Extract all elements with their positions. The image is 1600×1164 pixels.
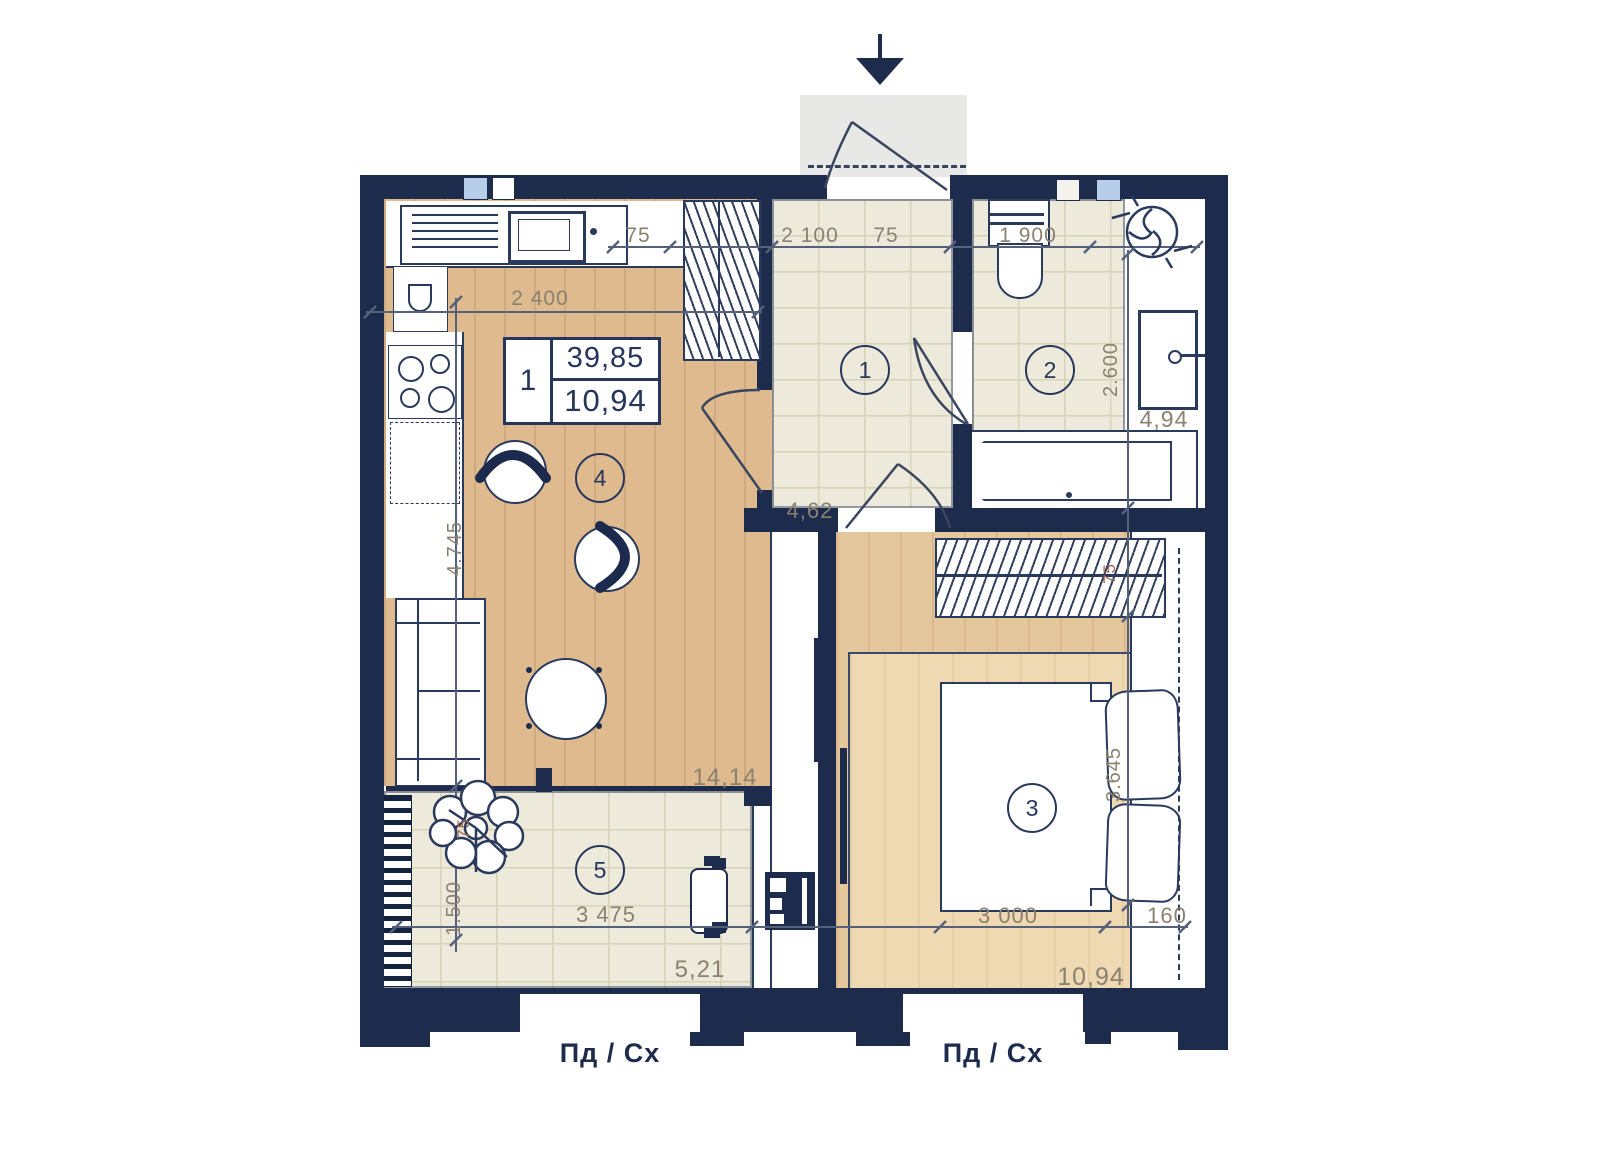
room-number-hallway: 1 bbox=[840, 345, 890, 395]
hinge-block bbox=[704, 928, 720, 938]
wardrobe bbox=[935, 538, 1166, 618]
desk-slot bbox=[770, 898, 782, 910]
dining-table-1 bbox=[483, 440, 547, 504]
vent-white bbox=[492, 177, 515, 200]
wall-living-bedroom bbox=[818, 532, 836, 988]
orientation-label-left: Пд / Сх bbox=[528, 1038, 692, 1069]
round-table bbox=[525, 658, 607, 740]
balcony-area: 5,21 bbox=[662, 956, 738, 984]
tv-console bbox=[840, 748, 847, 884]
entry-threshold-dashed bbox=[808, 165, 966, 168]
bed-notch bbox=[1090, 888, 1108, 906]
orientation-label-right: Пд / Сх bbox=[911, 1038, 1075, 1069]
toilet-tank-line bbox=[990, 213, 1044, 216]
hall-closet bbox=[683, 200, 761, 361]
bathtub-drain-icon bbox=[1066, 492, 1072, 498]
sofa-armrest-line bbox=[397, 622, 480, 624]
dim-top-75-left: 75 bbox=[614, 224, 662, 248]
bathroom-faucet-icon bbox=[1168, 350, 1182, 364]
dim-kitchen-height: 4.745 bbox=[444, 490, 470, 606]
sofa-cushion-line bbox=[419, 690, 480, 692]
apartment-total-area: 39,85 bbox=[553, 340, 658, 381]
dim-balcony-height: 1.500 bbox=[443, 862, 469, 954]
vent-white bbox=[1056, 179, 1080, 201]
room-number-text: 4 bbox=[594, 465, 607, 492]
entry-opening bbox=[827, 177, 950, 199]
wall-bottom-seg bbox=[700, 994, 903, 1032]
wall-foot bbox=[1085, 1032, 1111, 1044]
sink-drainer-icon bbox=[412, 214, 498, 254]
apartment-living-area: 10,94 bbox=[553, 381, 658, 422]
burner-icon bbox=[400, 388, 420, 408]
desk-slot bbox=[770, 914, 784, 924]
balcony-door-leaf bbox=[536, 768, 552, 792]
dim-wardrobe-depth: 75 bbox=[1100, 546, 1124, 602]
wall-left bbox=[360, 175, 384, 1032]
hinge-block bbox=[704, 856, 720, 866]
wall-foot bbox=[856, 1032, 910, 1046]
dim-bed-width: 3 000 bbox=[966, 903, 1050, 929]
bathroom-faucet-line bbox=[1180, 354, 1205, 357]
dim-line-kitchen bbox=[366, 311, 762, 313]
wall-hall-bath-lower bbox=[953, 424, 972, 532]
room-number-kitchen: 4 bbox=[575, 453, 625, 503]
dim-bedroom-height: 3.645 bbox=[1103, 722, 1129, 826]
living-area: 14,14 bbox=[684, 764, 766, 792]
wall-foot bbox=[1178, 1032, 1228, 1050]
dim-line-bottom bbox=[392, 926, 1188, 928]
room-number-bedroom: 3 bbox=[1007, 783, 1057, 833]
wall-top-left bbox=[360, 175, 827, 199]
sink-basin-inner bbox=[518, 219, 570, 251]
room-number-text: 2 bbox=[1044, 357, 1057, 384]
dim-kitchen-width: 2 400 bbox=[498, 287, 582, 311]
wall-foot bbox=[690, 1032, 744, 1046]
dining-table-2 bbox=[574, 526, 640, 592]
burner-icon bbox=[398, 356, 424, 382]
bed-notch bbox=[1090, 684, 1108, 702]
room-number-text: 1 bbox=[859, 357, 872, 384]
sofa-armrest-line bbox=[397, 758, 480, 760]
bathroom-area: 4,94 bbox=[1130, 406, 1198, 433]
bedroom-area: 10,94 bbox=[1046, 963, 1136, 992]
wall-bottom-seg bbox=[1083, 994, 1228, 1032]
dim-balcony-width: 3 475 bbox=[562, 902, 650, 928]
vent-blue bbox=[463, 177, 488, 200]
hall-closet-divider bbox=[718, 200, 720, 357]
wall-right bbox=[1205, 175, 1228, 1050]
vent-blue bbox=[1096, 179, 1121, 201]
floor-plan: 1 39,85 10,94 bbox=[0, 0, 1600, 1164]
dim-balcony-ledge: 75 bbox=[454, 800, 478, 858]
entry-arrow-stem bbox=[878, 34, 882, 60]
washing-machine-icon bbox=[408, 284, 432, 312]
room-number-text: 5 bbox=[594, 857, 607, 884]
apartment-info-box: 1 39,85 10,94 bbox=[503, 337, 661, 425]
toilet-bowl-icon bbox=[997, 243, 1043, 299]
room-number-bathroom: 2 bbox=[1025, 345, 1075, 395]
wall-hall-south-right bbox=[935, 508, 1205, 532]
hallway-area: 4,62 bbox=[778, 498, 842, 524]
wall-bottom-seg bbox=[360, 994, 520, 1032]
dim-top-1900: 1 900 bbox=[986, 224, 1070, 248]
desk-slot bbox=[802, 878, 807, 924]
entry-arrow-icon bbox=[856, 58, 904, 85]
wall-foot bbox=[360, 1032, 430, 1047]
apartment-number: 1 bbox=[506, 340, 553, 422]
dim-top-75-right: 75 bbox=[862, 224, 910, 248]
sink-faucet-icon bbox=[590, 228, 597, 235]
dim-bathroom-height: 2.600 bbox=[1100, 320, 1126, 418]
wall-hall-bath-upper bbox=[953, 199, 972, 332]
desk-slot bbox=[770, 878, 786, 892]
dim-top-2100: 2 100 bbox=[768, 224, 852, 248]
dim-niche-width: 160 bbox=[1138, 903, 1196, 929]
room-number-balcony: 5 bbox=[575, 845, 625, 895]
burner-icon bbox=[430, 354, 450, 374]
room-number-text: 3 bbox=[1026, 795, 1039, 822]
burner-icon bbox=[428, 386, 455, 413]
balcony-right-line bbox=[752, 791, 754, 988]
